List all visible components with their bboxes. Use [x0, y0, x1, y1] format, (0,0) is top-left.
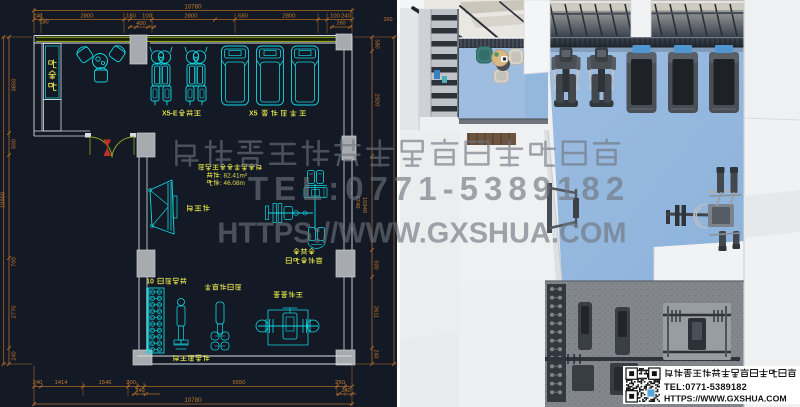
svg-text:260: 260 — [384, 17, 393, 23]
svg-text:10: 10 — [146, 279, 154, 286]
svg-text:500: 500 — [12, 139, 18, 149]
svg-text:2770: 2770 — [12, 306, 18, 319]
svg-text:100: 100 — [142, 13, 152, 19]
svg-text:240: 240 — [341, 13, 351, 19]
svg-text:X5-E: X5-E — [162, 111, 178, 118]
svg-text:680: 680 — [238, 13, 248, 19]
svg-text:6550: 6550 — [233, 380, 246, 386]
svg-text:250: 250 — [335, 380, 345, 386]
svg-text:2800: 2800 — [81, 13, 94, 19]
svg-text:2800: 2800 — [185, 13, 198, 19]
svg-text:240: 240 — [135, 388, 144, 394]
svg-text:580: 580 — [374, 39, 380, 48]
svg-text:10950: 10950 — [1, 192, 7, 208]
svg-text:2920: 2920 — [374, 94, 380, 107]
svg-text:1546: 1546 — [99, 380, 112, 386]
svg-text:X5: X5 — [249, 111, 258, 118]
svg-text:260: 260 — [336, 21, 345, 27]
svg-text:400: 400 — [136, 21, 146, 27]
svg-text:2611: 2611 — [373, 306, 379, 318]
svg-text:240: 240 — [373, 350, 379, 359]
svg-text:240: 240 — [341, 388, 350, 394]
svg-text:2800: 2800 — [283, 13, 296, 19]
svg-text:HTTPS://WWW.GXSHUA.COM: HTTPS://WWW.GXSHUA.COM — [664, 394, 787, 404]
svg-text:: 82.41m²: : 82.41m² — [220, 173, 247, 180]
svg-text:300: 300 — [126, 380, 136, 386]
svg-text:TEL:0771-5389182: TEL:0771-5389182 — [664, 382, 747, 392]
svg-text:180: 180 — [126, 13, 136, 19]
svg-text:TEL:0771-5389182: TEL:0771-5389182 — [248, 170, 630, 207]
svg-text:10780: 10780 — [184, 397, 202, 404]
svg-text:240: 240 — [12, 351, 18, 360]
svg-text:100: 100 — [330, 13, 340, 19]
svg-text:700: 700 — [12, 257, 18, 267]
svg-text:1414: 1414 — [55, 380, 69, 386]
svg-text:3650: 3650 — [12, 79, 18, 92]
svg-text:10780: 10780 — [184, 4, 202, 11]
svg-text:180: 180 — [39, 20, 48, 26]
svg-text:HTTPS://WWW.GXSHUA.COM: HTTPS://WWW.GXSHUA.COM — [217, 218, 626, 250]
svg-text:: 46.08m: : 46.08m — [220, 180, 245, 187]
svg-text:500: 500 — [373, 260, 379, 269]
